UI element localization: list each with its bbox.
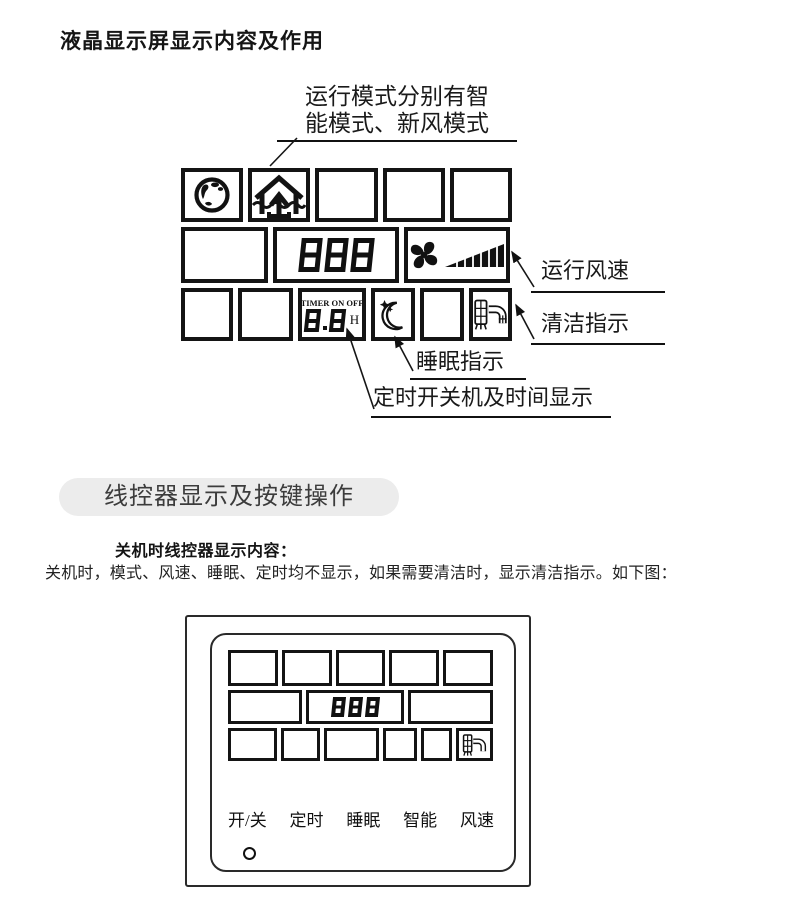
seg-digit-8	[329, 309, 346, 332]
sleep-indicator-label: 睡眠指示	[410, 344, 526, 380]
lcd-cell-empty	[421, 728, 452, 761]
lcd-cell-empty	[383, 168, 445, 222]
mode-annotation-line2: 能模式、新风模式	[277, 110, 517, 137]
controller-button-label: 风速	[460, 806, 494, 831]
seg-digit-8	[350, 238, 375, 272]
lcd-cell-empty	[181, 227, 268, 283]
lcd-cell-empty	[228, 690, 302, 724]
lcd-row-modes	[181, 168, 512, 222]
lcd-row-main	[181, 227, 512, 283]
lcd-cell-clean	[469, 288, 512, 341]
fan-icon	[408, 239, 440, 271]
timer-display-label: 定时开关机及时间显示	[371, 380, 611, 418]
controller-button-label: 开/关	[228, 806, 267, 831]
controller-lcd-row3	[228, 728, 493, 761]
lcd-cell-empty	[389, 650, 439, 686]
lcd-cell-smart-mode	[181, 168, 243, 222]
moon-stars-icon	[377, 298, 409, 332]
controller-button-label: 智能	[403, 806, 437, 831]
seg-decimal-point	[323, 326, 327, 330]
lcd-cell-timer: TIMER ON OFF H	[298, 288, 366, 341]
lcd-cell-empty	[324, 728, 379, 761]
speed-wedge-icon	[444, 241, 506, 269]
seg-digit-8	[324, 238, 349, 272]
lcd-cell-empty	[181, 288, 233, 341]
lcd-cell-empty	[238, 288, 293, 341]
lcd-cell-empty	[336, 650, 386, 686]
controller-digits	[306, 690, 404, 724]
controller-display	[228, 650, 493, 761]
lcd-cell-empty	[408, 690, 493, 724]
seg-digit-8	[364, 697, 379, 717]
seg-digit-8	[347, 697, 362, 717]
lcd-cell-empty	[282, 650, 332, 686]
controller-button-label: 定时	[290, 806, 324, 831]
lcd-cell-fan-speed	[404, 227, 510, 283]
lcd-cell-empty	[383, 728, 417, 761]
timer-hour-unit: H	[350, 312, 359, 328]
lcd-cell-sleep	[371, 288, 415, 341]
lcd-cell-fresh-air-mode	[248, 168, 310, 222]
controller-buttons: 开/关定时睡眠智能风速	[228, 806, 494, 831]
lcd-row-bottom: TIMER ON OFF H	[181, 288, 512, 341]
lcd-cell-empty	[281, 728, 320, 761]
lcd-cell-empty	[228, 650, 278, 686]
filter-clean-icon	[473, 297, 508, 332]
indicator-dot	[243, 847, 256, 860]
globe-icon	[192, 175, 232, 215]
manual-page: 液晶显示屏显示内容及作用 运行模式分别有智 能模式、新风模式	[0, 0, 790, 912]
lcd-display-diagram: TIMER ON OFF H	[181, 168, 512, 341]
lcd-cell-clean-small	[456, 728, 493, 761]
seg-digit-8	[330, 697, 345, 717]
timer-on-off-label: TIMER ON OFF	[301, 298, 364, 308]
lcd-cell-empty	[443, 650, 493, 686]
page-title: 液晶显示屏显示内容及作用	[60, 25, 324, 55]
section-subheading: 关机时线控器显示内容：	[115, 537, 297, 561]
fresh-air-house-icon	[252, 172, 306, 218]
timer-hour-digits	[305, 309, 345, 332]
controller-button-label: 睡眠	[346, 806, 380, 831]
lcd-cell-empty	[450, 168, 512, 222]
timer-digits-row: H	[305, 309, 359, 332]
filter-clean-icon	[462, 733, 487, 757]
mode-annotation-line1: 运行模式分别有智	[277, 83, 517, 110]
seg-digit-8	[304, 309, 321, 332]
mode-annotation: 运行模式分别有智 能模式、新风模式	[277, 83, 517, 142]
lcd-cell-temperature-digits	[273, 227, 399, 283]
fan-speed-label: 运行风速	[531, 253, 665, 293]
clean-indicator-label: 清洁指示	[531, 306, 665, 345]
lcd-cell-empty	[420, 288, 464, 341]
section-header: 线控器显示及按键操作	[59, 478, 399, 516]
controller-lcd-row1	[228, 650, 493, 686]
lcd-cell-empty	[315, 168, 377, 222]
controller-lcd-row2	[228, 690, 493, 724]
section-body: 关机时，模式、风速、睡眠、定时均不显示，如果需要清洁时，显示清洁指示。如下图：	[45, 559, 757, 583]
lcd-cell-empty	[228, 728, 277, 761]
seg-digit-8	[298, 238, 323, 272]
